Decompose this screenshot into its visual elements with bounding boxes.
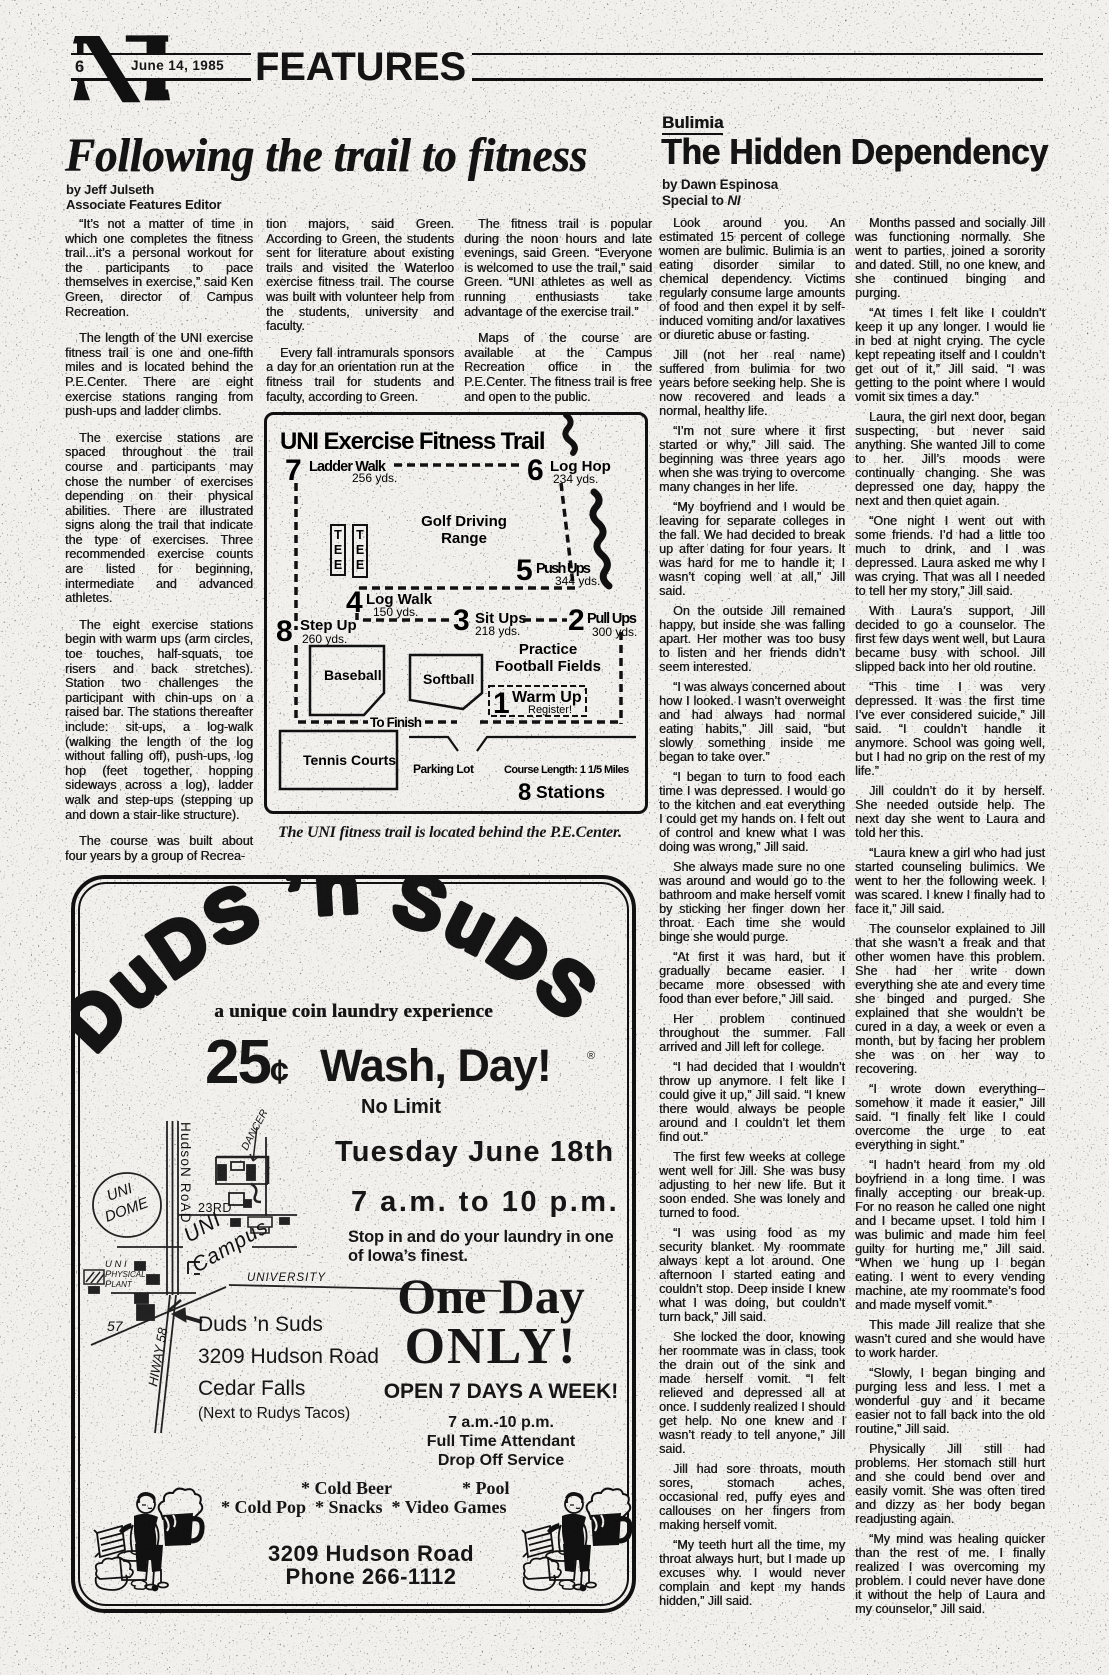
svg-text:1: 1: [493, 687, 510, 720]
svg-text:UNIVERSITY: UNIVERSITY: [247, 1272, 326, 1284]
svg-text:UNI Exercise Fitness Trail: UNI Exercise Fitness Trail: [280, 428, 545, 455]
svg-text:E: E: [334, 558, 342, 572]
svg-text:256 yds.: 256 yds.: [352, 471, 397, 485]
svg-text:Practice: Practice: [519, 641, 577, 658]
svg-text:260 yds.: 260 yds.: [302, 632, 347, 646]
svg-text:344 yds.: 344 yds.: [555, 574, 600, 588]
svg-text:150 yds.: 150 yds.: [373, 605, 418, 619]
svg-text:Baseball: Baseball: [324, 667, 382, 683]
svg-text:Tennis Courts: Tennis Courts: [303, 752, 396, 768]
svg-text:Football Fields: Football Fields: [495, 658, 601, 675]
svg-text:57: 57: [107, 1318, 124, 1334]
svg-text:5: 5: [516, 554, 533, 587]
svg-text:300 yds.: 300 yds.: [592, 625, 637, 639]
svg-text:Course Length: 1 1/5 Miles: Course Length: 1 1/5 Miles: [504, 764, 629, 776]
svg-text:6: 6: [527, 454, 544, 487]
svg-text:HudsoN RoAD: HudsoN RoAD: [178, 1122, 193, 1224]
svg-text:Range: Range: [441, 530, 487, 547]
svg-text:Softball: Softball: [423, 671, 474, 687]
svg-text:®: ®: [587, 1050, 595, 1062]
svg-text:8: 8: [276, 615, 293, 648]
svg-text:PLANT: PLANT: [105, 1279, 133, 1290]
svg-text:3: 3: [453, 604, 470, 637]
svg-text:To Finish: To Finish: [370, 715, 422, 730]
svg-text:218 yds.: 218 yds.: [475, 624, 520, 638]
svg-text:8: 8: [518, 779, 531, 806]
svg-text:Parking Lot: Parking Lot: [413, 762, 474, 776]
svg-text:Register!: Register!: [528, 704, 572, 716]
svg-text:T: T: [334, 528, 342, 542]
svg-text:Golf Driving: Golf Driving: [421, 513, 507, 530]
svg-text:4: 4: [346, 586, 363, 619]
svg-text:DuDS ’n SuDS: DuDS ’n SuDS: [71, 875, 615, 1066]
svg-text:E: E: [356, 558, 364, 572]
svg-text:7: 7: [285, 454, 302, 487]
svg-text:E: E: [356, 543, 364, 557]
svg-text:T: T: [356, 528, 364, 542]
svg-text:Stations: Stations: [536, 782, 605, 802]
svg-text:E: E: [334, 543, 342, 557]
svg-text:2: 2: [568, 604, 585, 637]
